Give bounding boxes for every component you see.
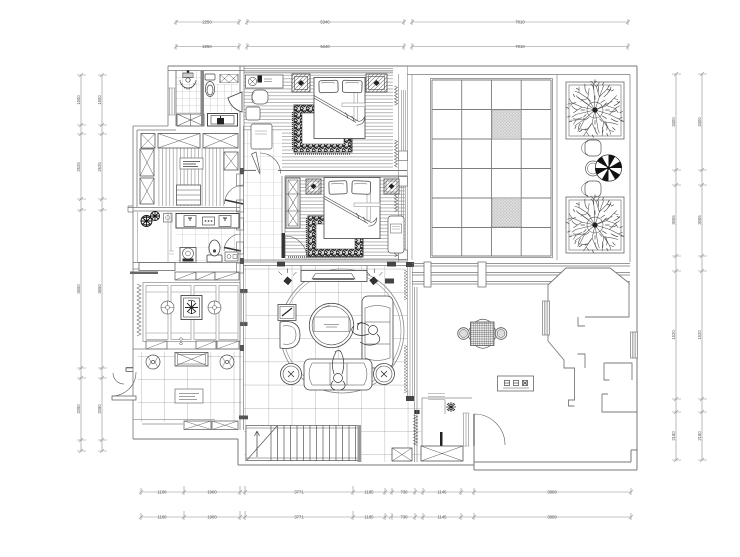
svg-text:3771: 3771 bbox=[294, 490, 304, 495]
svg-text:7010: 7010 bbox=[515, 20, 525, 25]
svg-text:2250: 2250 bbox=[202, 44, 212, 49]
svg-text:1145: 1145 bbox=[437, 515, 447, 520]
svg-text:3771: 3771 bbox=[294, 515, 304, 520]
svg-text:2180: 2180 bbox=[697, 431, 702, 441]
svg-text:2625: 2625 bbox=[97, 162, 102, 172]
svg-text:2090: 2090 bbox=[76, 404, 81, 414]
svg-text:3065: 3065 bbox=[697, 215, 702, 225]
svg-text:2180: 2180 bbox=[671, 431, 676, 441]
svg-text:1100: 1100 bbox=[157, 490, 167, 495]
svg-text:3300: 3300 bbox=[697, 117, 702, 127]
svg-text:1185: 1185 bbox=[364, 490, 374, 495]
svg-text:2625: 2625 bbox=[76, 162, 81, 172]
svg-text:1900: 1900 bbox=[207, 490, 217, 495]
svg-text:1100: 1100 bbox=[157, 515, 167, 520]
svg-text:5340: 5340 bbox=[320, 20, 330, 25]
svg-text:3809: 3809 bbox=[547, 515, 557, 520]
svg-text:1520: 1520 bbox=[671, 330, 676, 340]
svg-text:3650: 3650 bbox=[76, 284, 81, 294]
svg-text:730: 730 bbox=[401, 490, 409, 495]
svg-text:3300: 3300 bbox=[671, 117, 676, 127]
svg-text:3809: 3809 bbox=[547, 490, 557, 495]
svg-text:2250: 2250 bbox=[202, 20, 212, 25]
svg-text:1520: 1520 bbox=[697, 330, 702, 340]
svg-text:7010: 7010 bbox=[515, 44, 525, 49]
svg-text:2090: 2090 bbox=[97, 404, 102, 414]
svg-text:5340: 5340 bbox=[320, 44, 330, 49]
svg-text:3650: 3650 bbox=[97, 284, 102, 294]
svg-text:1900: 1900 bbox=[207, 515, 217, 520]
svg-text:1185: 1185 bbox=[364, 515, 374, 520]
svg-text:730: 730 bbox=[401, 515, 409, 520]
svg-text:1500: 1500 bbox=[76, 95, 81, 105]
svg-text:1145: 1145 bbox=[437, 490, 447, 495]
svg-text:1500: 1500 bbox=[97, 95, 102, 105]
svg-text:3065: 3065 bbox=[671, 215, 676, 225]
